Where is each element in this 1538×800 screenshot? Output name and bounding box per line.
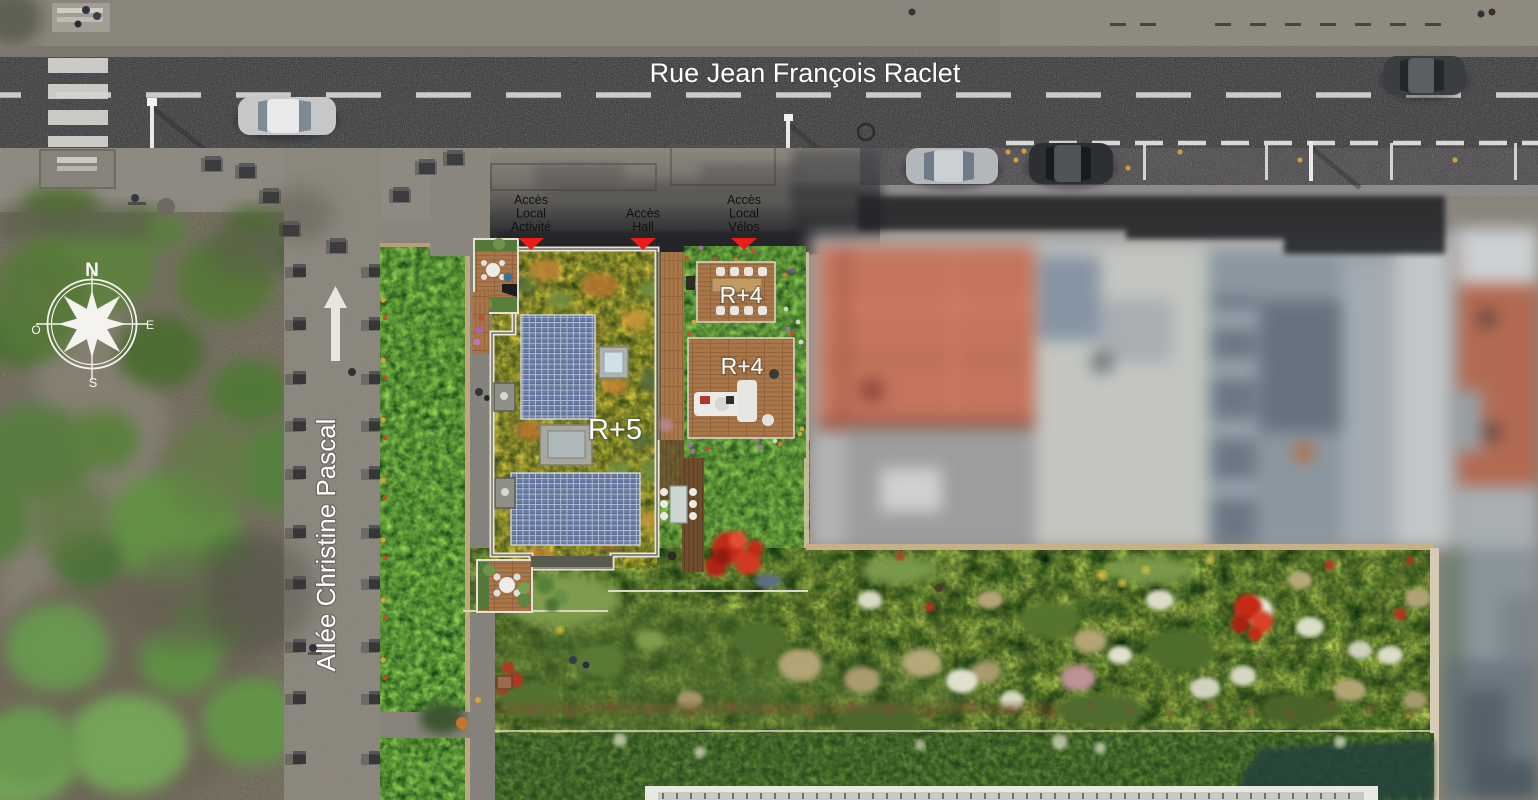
svg-text:R+4: R+4 [720, 282, 763, 308]
svg-text:R+4: R+4 [721, 353, 764, 379]
svg-text:O: O [31, 323, 40, 337]
svg-text:Activité: Activité [511, 220, 551, 234]
svg-text:Allée Christine Pascal: Allée Christine Pascal [311, 419, 341, 672]
svg-text:R+5: R+5 [588, 414, 642, 446]
svg-text:Hall: Hall [632, 220, 654, 234]
svg-text:Local: Local [729, 207, 759, 221]
svg-text:Accès: Accès [514, 193, 548, 207]
svg-text:Vélos: Vélos [728, 220, 759, 234]
svg-text:Rue Jean François Raclet: Rue Jean François Raclet [650, 58, 961, 88]
svg-text:N: N [85, 260, 99, 281]
svg-text:Local: Local [516, 207, 546, 221]
svg-text:Accès: Accès [626, 207, 660, 221]
svg-text:E: E [146, 318, 154, 332]
svg-text:S: S [89, 375, 98, 390]
svg-text:Accès: Accès [727, 193, 761, 207]
